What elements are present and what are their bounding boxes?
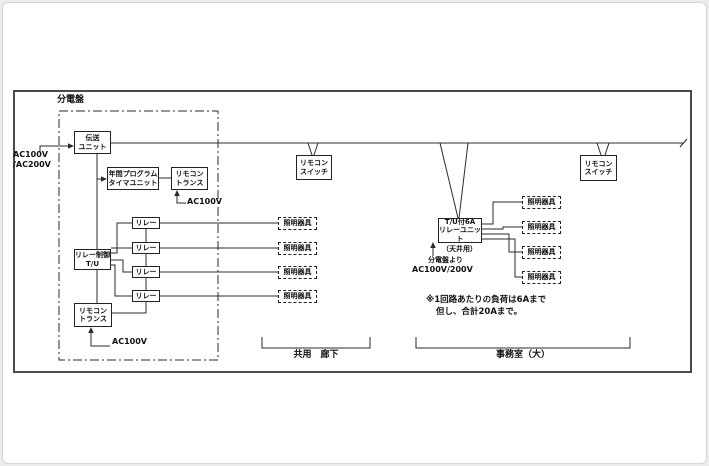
remocon-transformer-bottom-box: リモコン トランス: [74, 303, 112, 327]
relay-control-unit-box: リレー制御 T/U: [74, 249, 111, 270]
sub-feed-voltage-label: AC100V/200V: [412, 265, 473, 275]
program-timer-unit-box: 年間プログラム タイマユニット: [107, 167, 159, 190]
transmission-unit-box: 伝送 ユニット: [74, 131, 111, 154]
light-fixture-right-4: 照明器具: [522, 271, 561, 284]
diagram-screen: 分電盤 AC100V /AC200V 伝送 ユニット 年間プログラム タイマユニ…: [0, 0, 709, 466]
relay-box-2: リレー: [132, 242, 160, 254]
light-fixture-right-3: 照明器具: [522, 246, 561, 259]
sub-feed-source-label: 分電盤より: [428, 256, 463, 265]
light-fixture-left-3: 照明器具: [278, 266, 317, 279]
light-fixture-right-1: 照明器具: [522, 196, 561, 209]
light-fixture-left-4: 照明器具: [278, 290, 317, 303]
note-line-1: ※1回路あたりの負荷は6Aまで: [426, 295, 546, 306]
relay-box-3: リレー: [132, 266, 160, 278]
area-label-corridor: 共用 廊下: [262, 350, 370, 361]
ac100v-label-bottom: AC100V: [112, 337, 147, 347]
light-fixture-left-1: 照明器具: [278, 217, 317, 230]
diagram-frame: [13, 90, 692, 373]
light-fixture-right-2: 照明器具: [522, 221, 561, 234]
ac100v-label-top: AC100V: [187, 197, 222, 207]
remocon-switch-box-1: リモコン スイッチ: [296, 155, 332, 180]
area-label-office: 事務室（大）: [416, 350, 630, 361]
light-fixture-left-2: 照明器具: [278, 242, 317, 255]
relay-unit-6a-box: T/U付6A リレーユニット: [438, 218, 482, 243]
feed-voltage-label: AC100V /AC200V: [13, 150, 51, 170]
relay-box-1: リレー: [132, 217, 160, 229]
remocon-transformer-top-box: リモコン トランス: [171, 167, 208, 190]
relay-unit-sub-label: （天井用）: [442, 245, 477, 254]
relay-box-4: リレー: [132, 290, 160, 302]
panel-label: 分電盤: [57, 95, 84, 106]
note-line-2: 但し、合計20Aまで。: [436, 307, 522, 318]
remocon-switch-box-2: リモコン スイッチ: [580, 155, 617, 181]
